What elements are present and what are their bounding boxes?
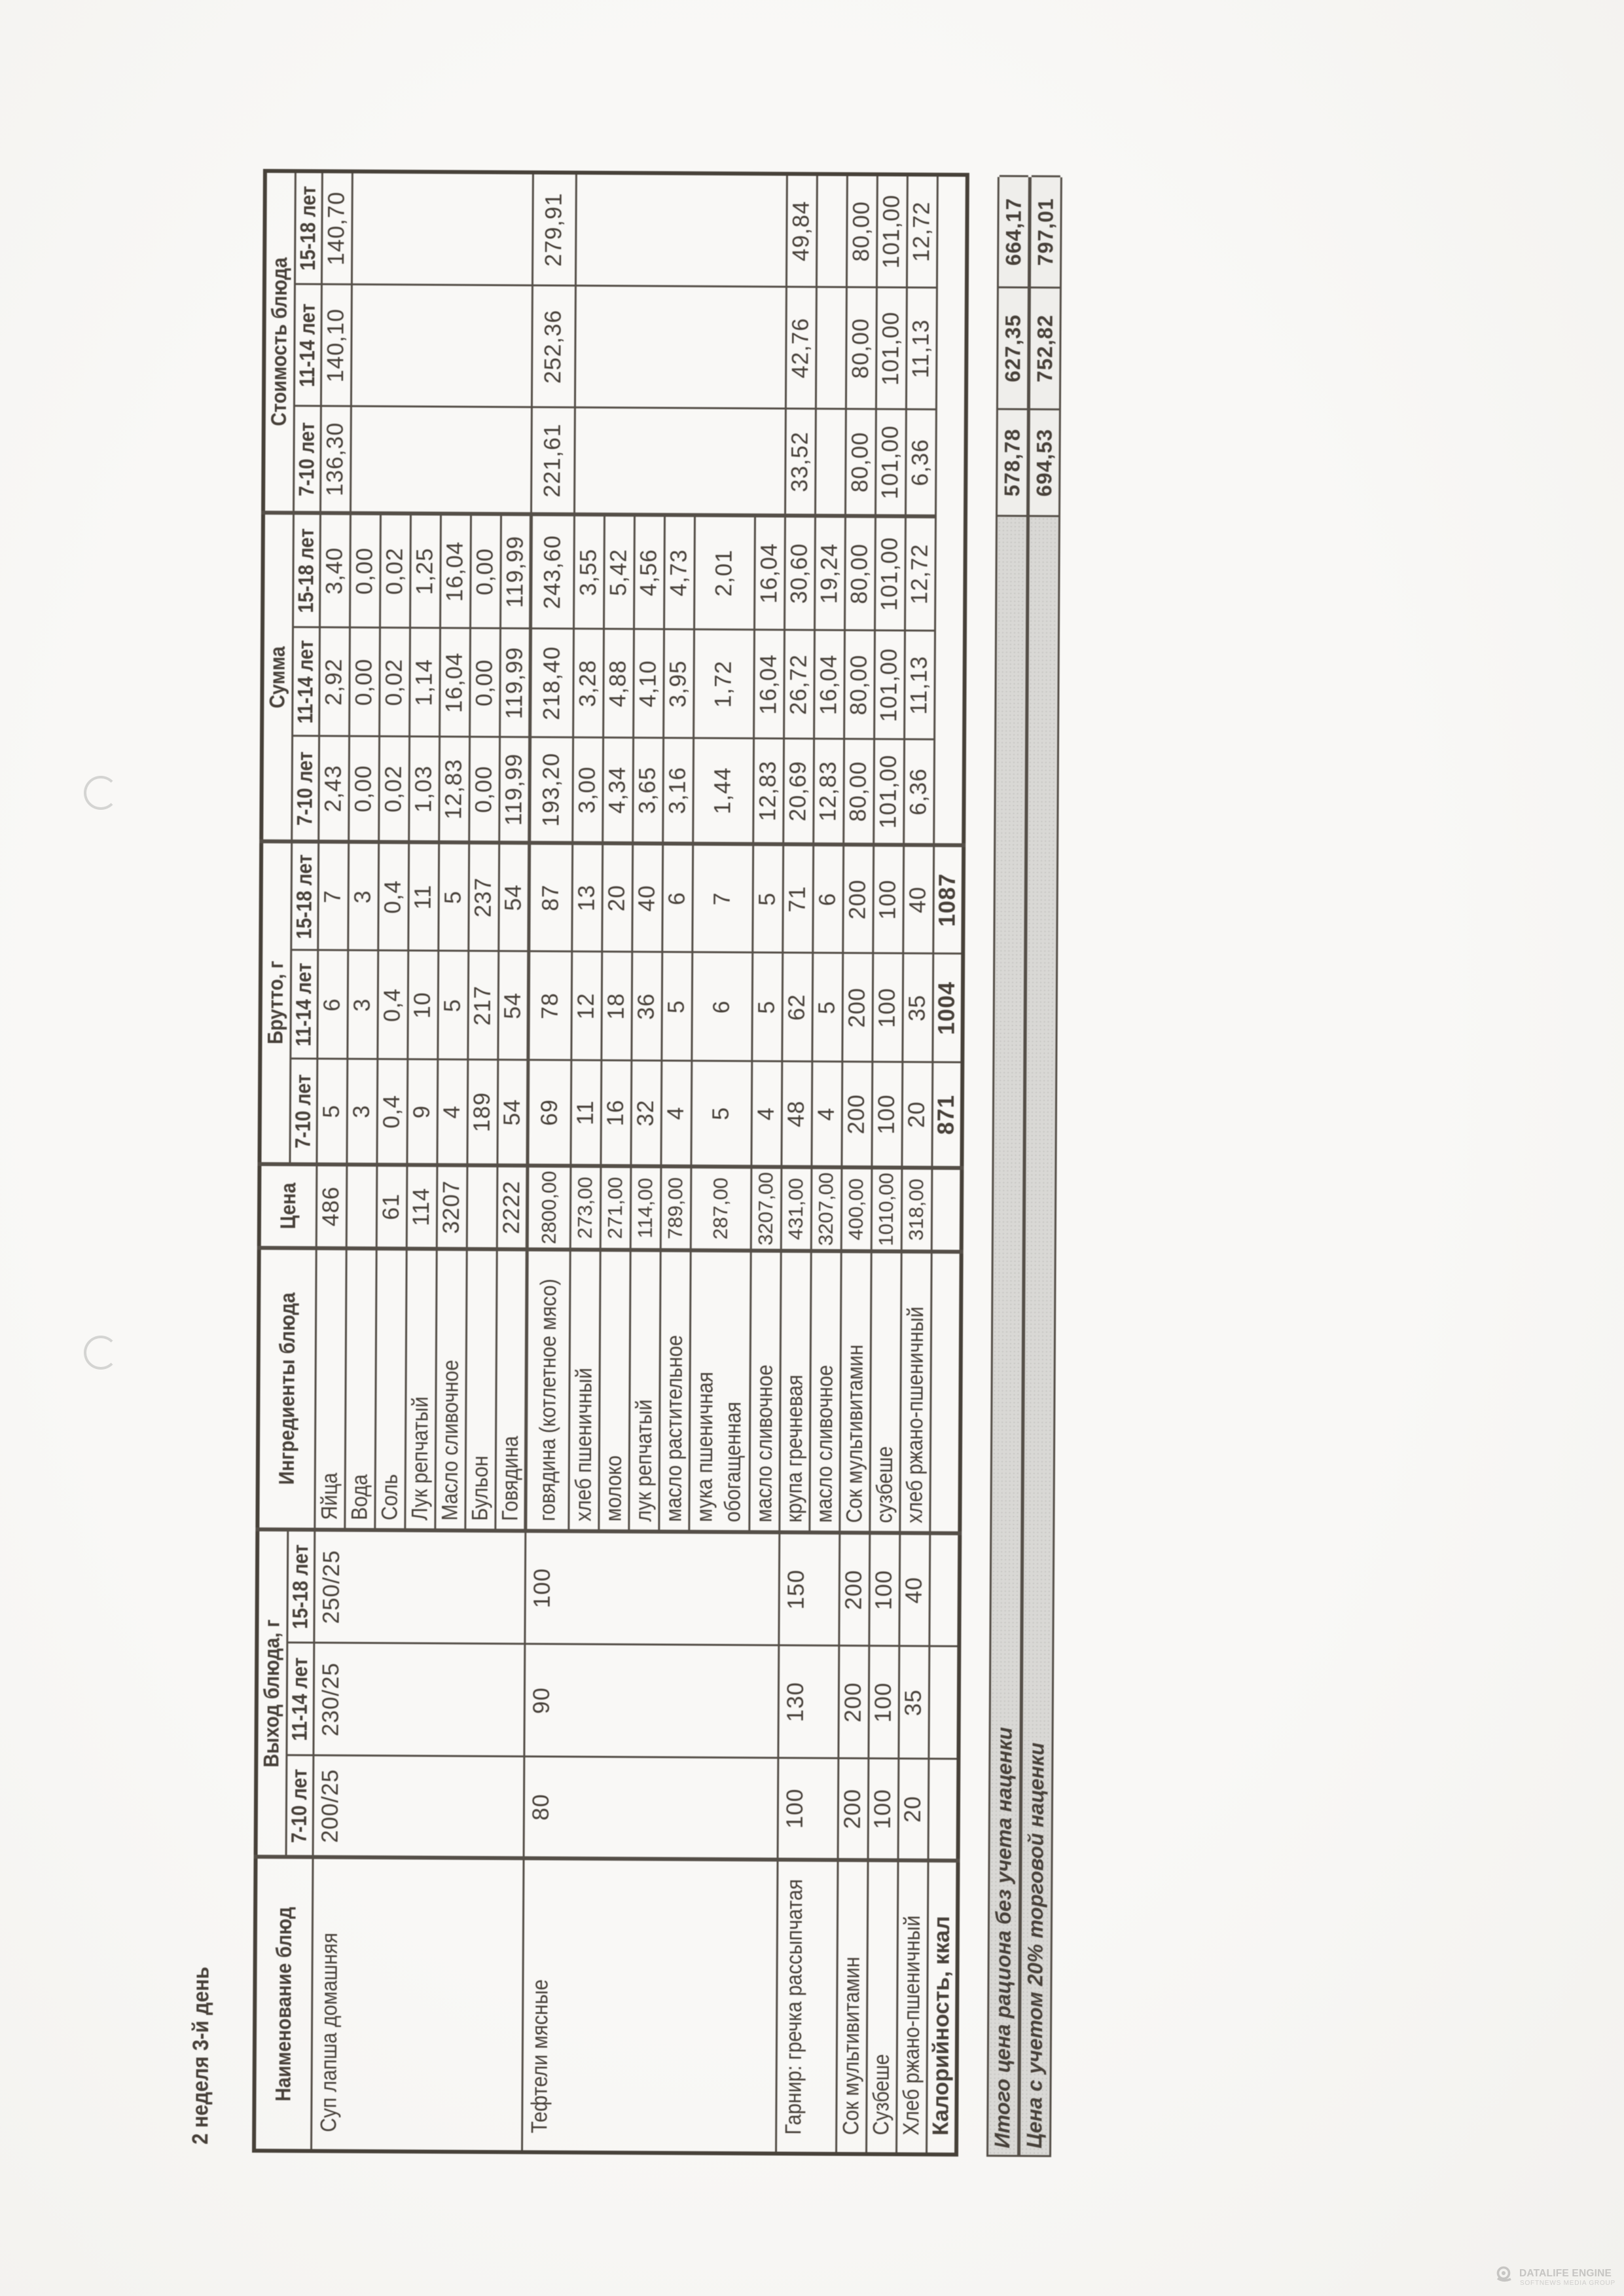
- svg-text:SOFTNEWS MEDIA GROUP: SOFTNEWS MEDIA GROUP: [1520, 2280, 1615, 2287]
- svg-text:DATALIFE ENGINE: DATALIFE ENGINE: [1519, 2268, 1612, 2279]
